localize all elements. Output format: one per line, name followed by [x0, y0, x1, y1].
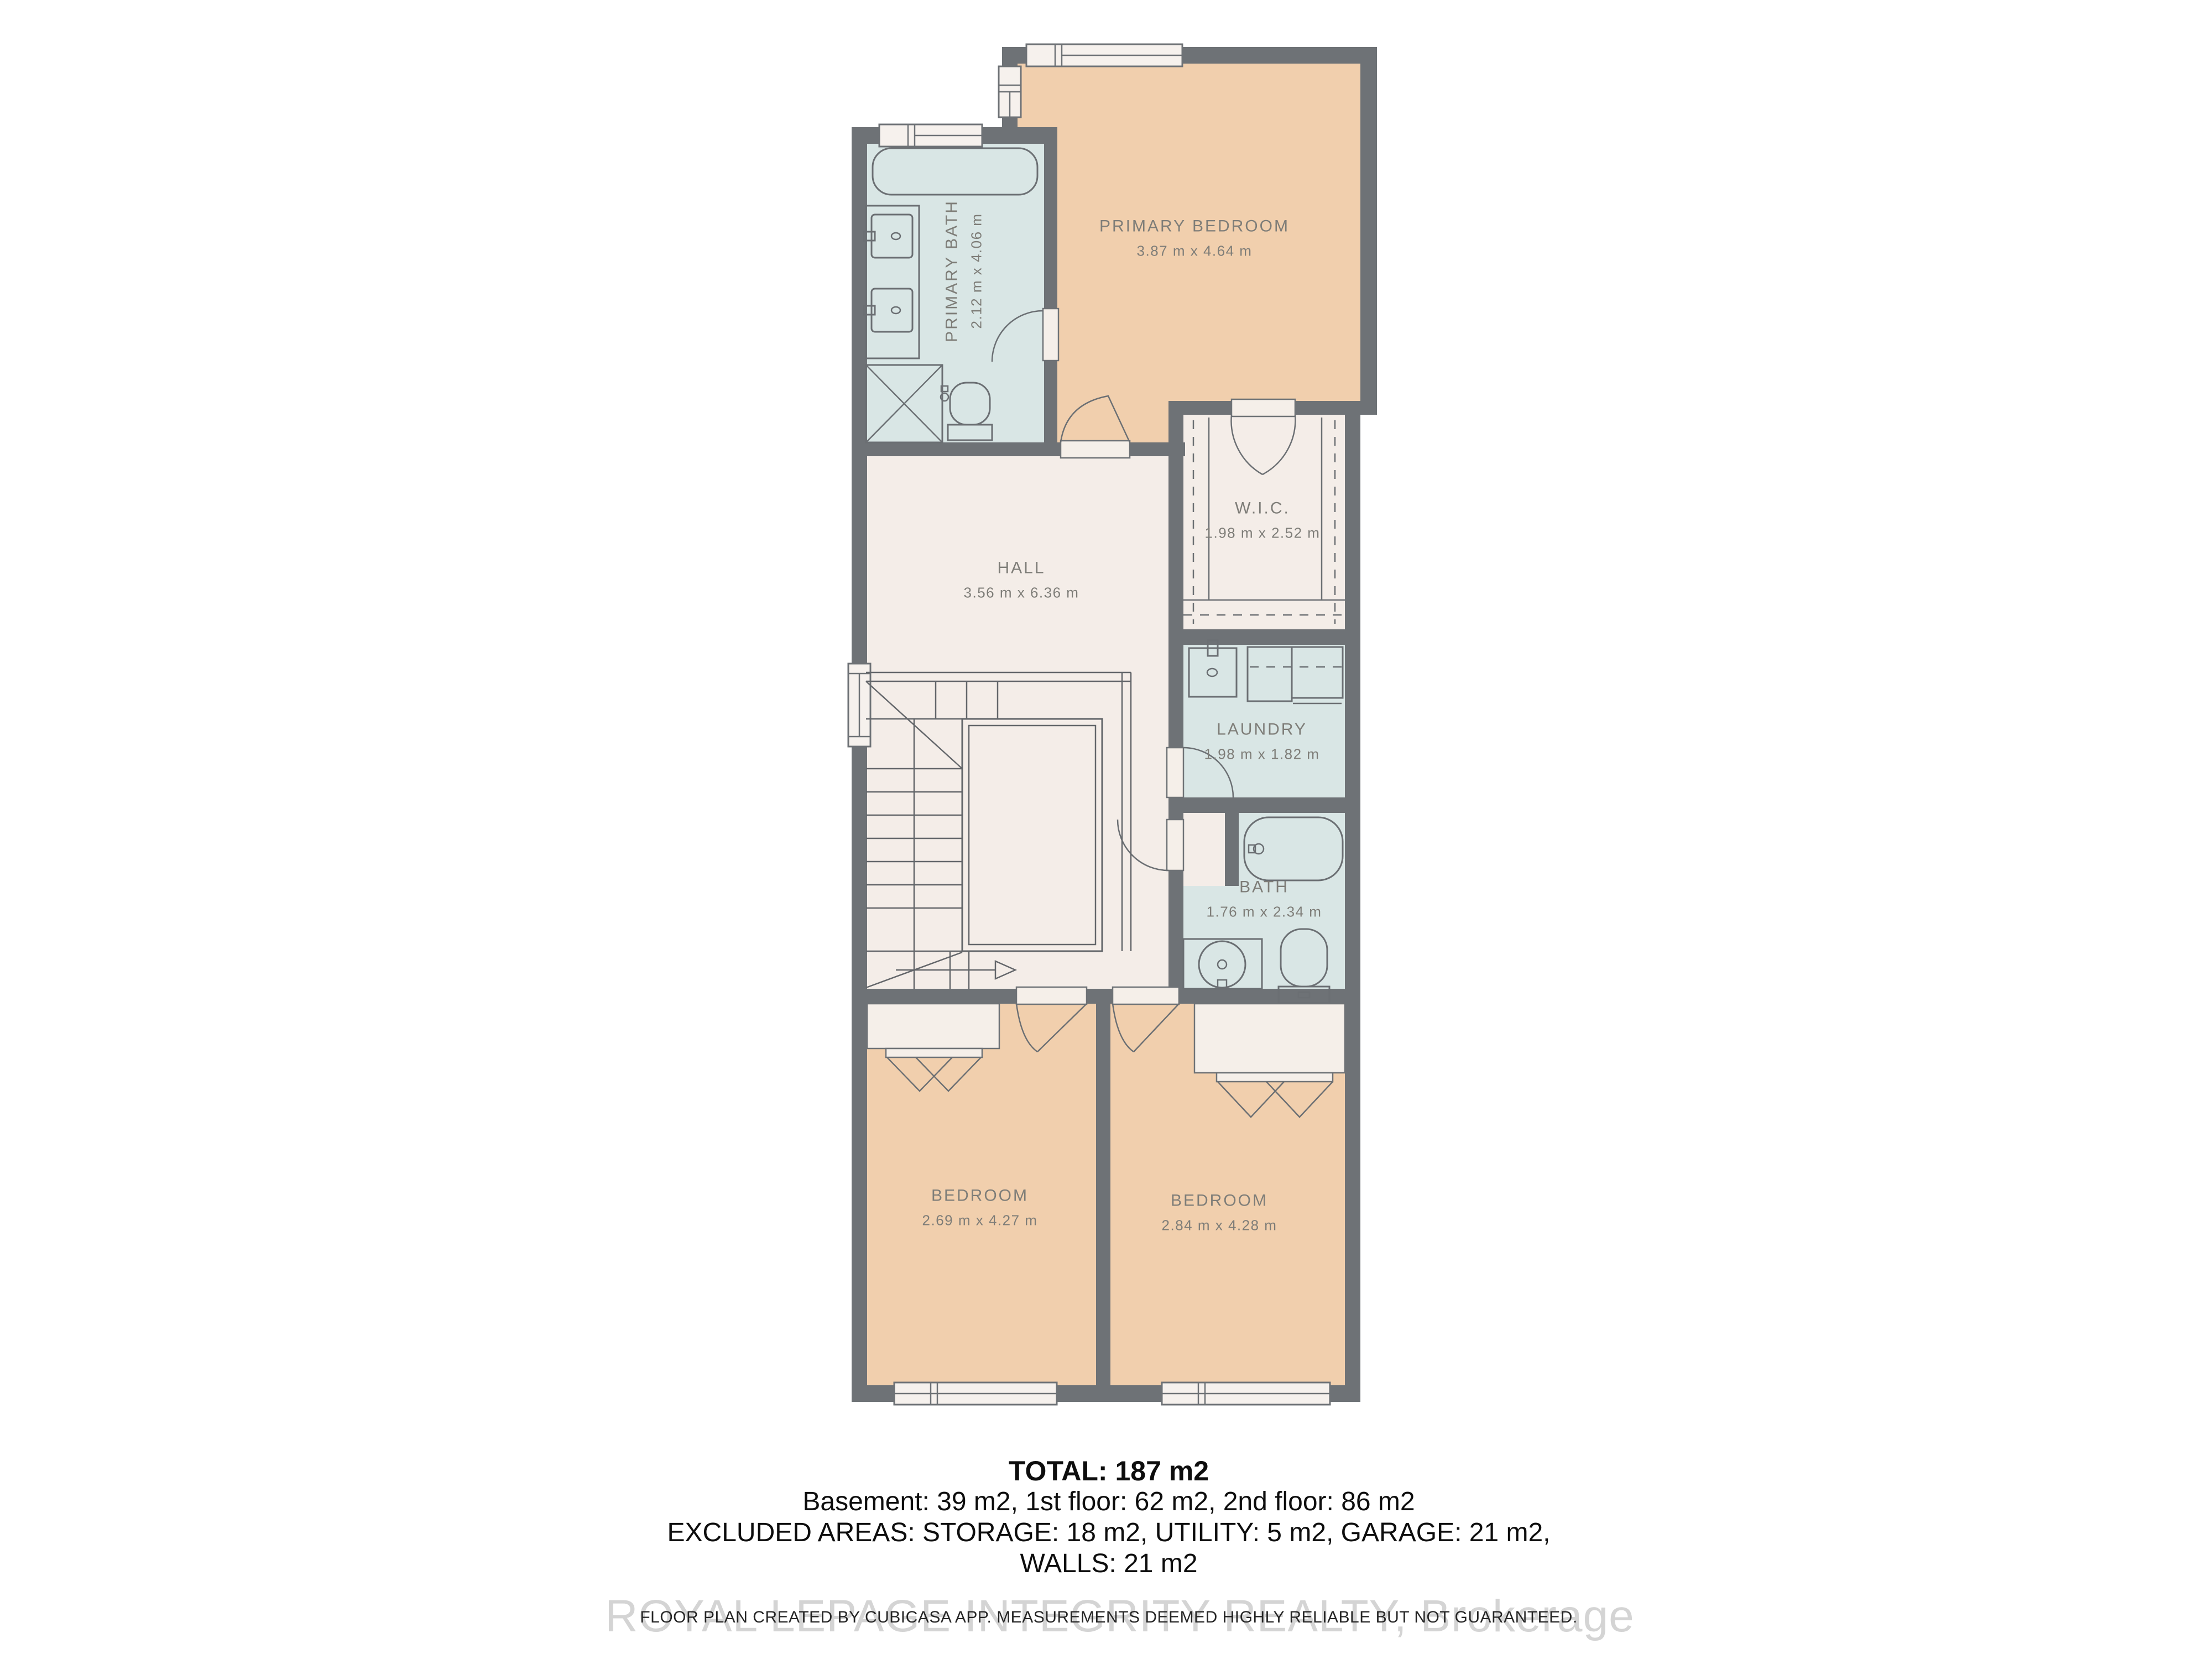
room-name: HALL	[964, 556, 1079, 582]
room-name: BEDROOM	[922, 1183, 1038, 1209]
room-dims: 3.56 m x 6.36 m	[964, 581, 1079, 603]
room-label-bedroom-left: BEDROOM 2.69 m x 4.27 m	[922, 1183, 1038, 1232]
walls-area-text: WALLS: 21 m2	[667, 1548, 1551, 1579]
room-label-hall: HALL 3.56 m x 6.36 m	[964, 556, 1079, 604]
area-summary: TOTAL: 187 m2 Basement: 39 m2, 1st floor…	[667, 1455, 1551, 1579]
window-icon	[894, 1383, 1057, 1405]
floor-areas-text: Basement: 39 m2, 1st floor: 62 m2, 2nd f…	[667, 1486, 1551, 1517]
window-icon	[879, 124, 982, 147]
room-label-bedroom-right: BEDROOM 2.84 m x 4.28 m	[1162, 1188, 1277, 1237]
room-label-laundry: LAUNDRY 1.98 m x 1.82 m	[1204, 717, 1320, 765]
room-label-wic: W.I.C. 1.98 m x 2.52 m	[1205, 496, 1321, 544]
window-icon	[848, 664, 870, 747]
disclaimer-text: FLOOR PLAN CREATED BY CUBICASA APP. MEAS…	[640, 1608, 1577, 1627]
room-dims: 2.12 m x 4.06 m	[965, 200, 987, 342]
excluded-areas-text: EXCLUDED AREAS: STORAGE: 18 m2, UTILITY:…	[667, 1517, 1551, 1548]
room-name: PRIMARY BEDROOM	[1099, 214, 1290, 240]
room-label-primary-bath: PRIMARY BATH 2.12 m x 4.06 m	[940, 200, 988, 342]
room-label-primary-bedroom: PRIMARY BEDROOM 3.87 m x 4.64 m	[1099, 214, 1290, 262]
floor-plan-page: { "plan": { "rooms": [ {"name": "PRIMARY…	[0, 0, 2212, 1659]
window-icon	[1026, 44, 1182, 66]
window-icon	[999, 66, 1021, 117]
room-dims: 3.87 m x 4.64 m	[1099, 239, 1290, 262]
room-name: LAUNDRY	[1204, 717, 1320, 743]
room-dims: 2.84 m x 4.28 m	[1162, 1214, 1277, 1236]
room-dims: 1.76 m x 2.34 m	[1207, 900, 1322, 922]
room-name: W.I.C.	[1205, 496, 1321, 522]
room-name: BEDROOM	[1162, 1188, 1277, 1214]
room-dims: 1.98 m x 1.82 m	[1204, 743, 1320, 765]
room-name: PRIMARY BATH	[940, 200, 966, 342]
window-icon	[1162, 1383, 1330, 1405]
room-name: BATH	[1207, 875, 1322, 901]
total-area-text: TOTAL: 187 m2	[667, 1455, 1551, 1486]
room-dims: 1.98 m x 2.52 m	[1205, 521, 1321, 544]
room-label-bath: BATH 1.76 m x 2.34 m	[1207, 875, 1322, 923]
room-dims: 2.69 m x 4.27 m	[922, 1209, 1038, 1231]
